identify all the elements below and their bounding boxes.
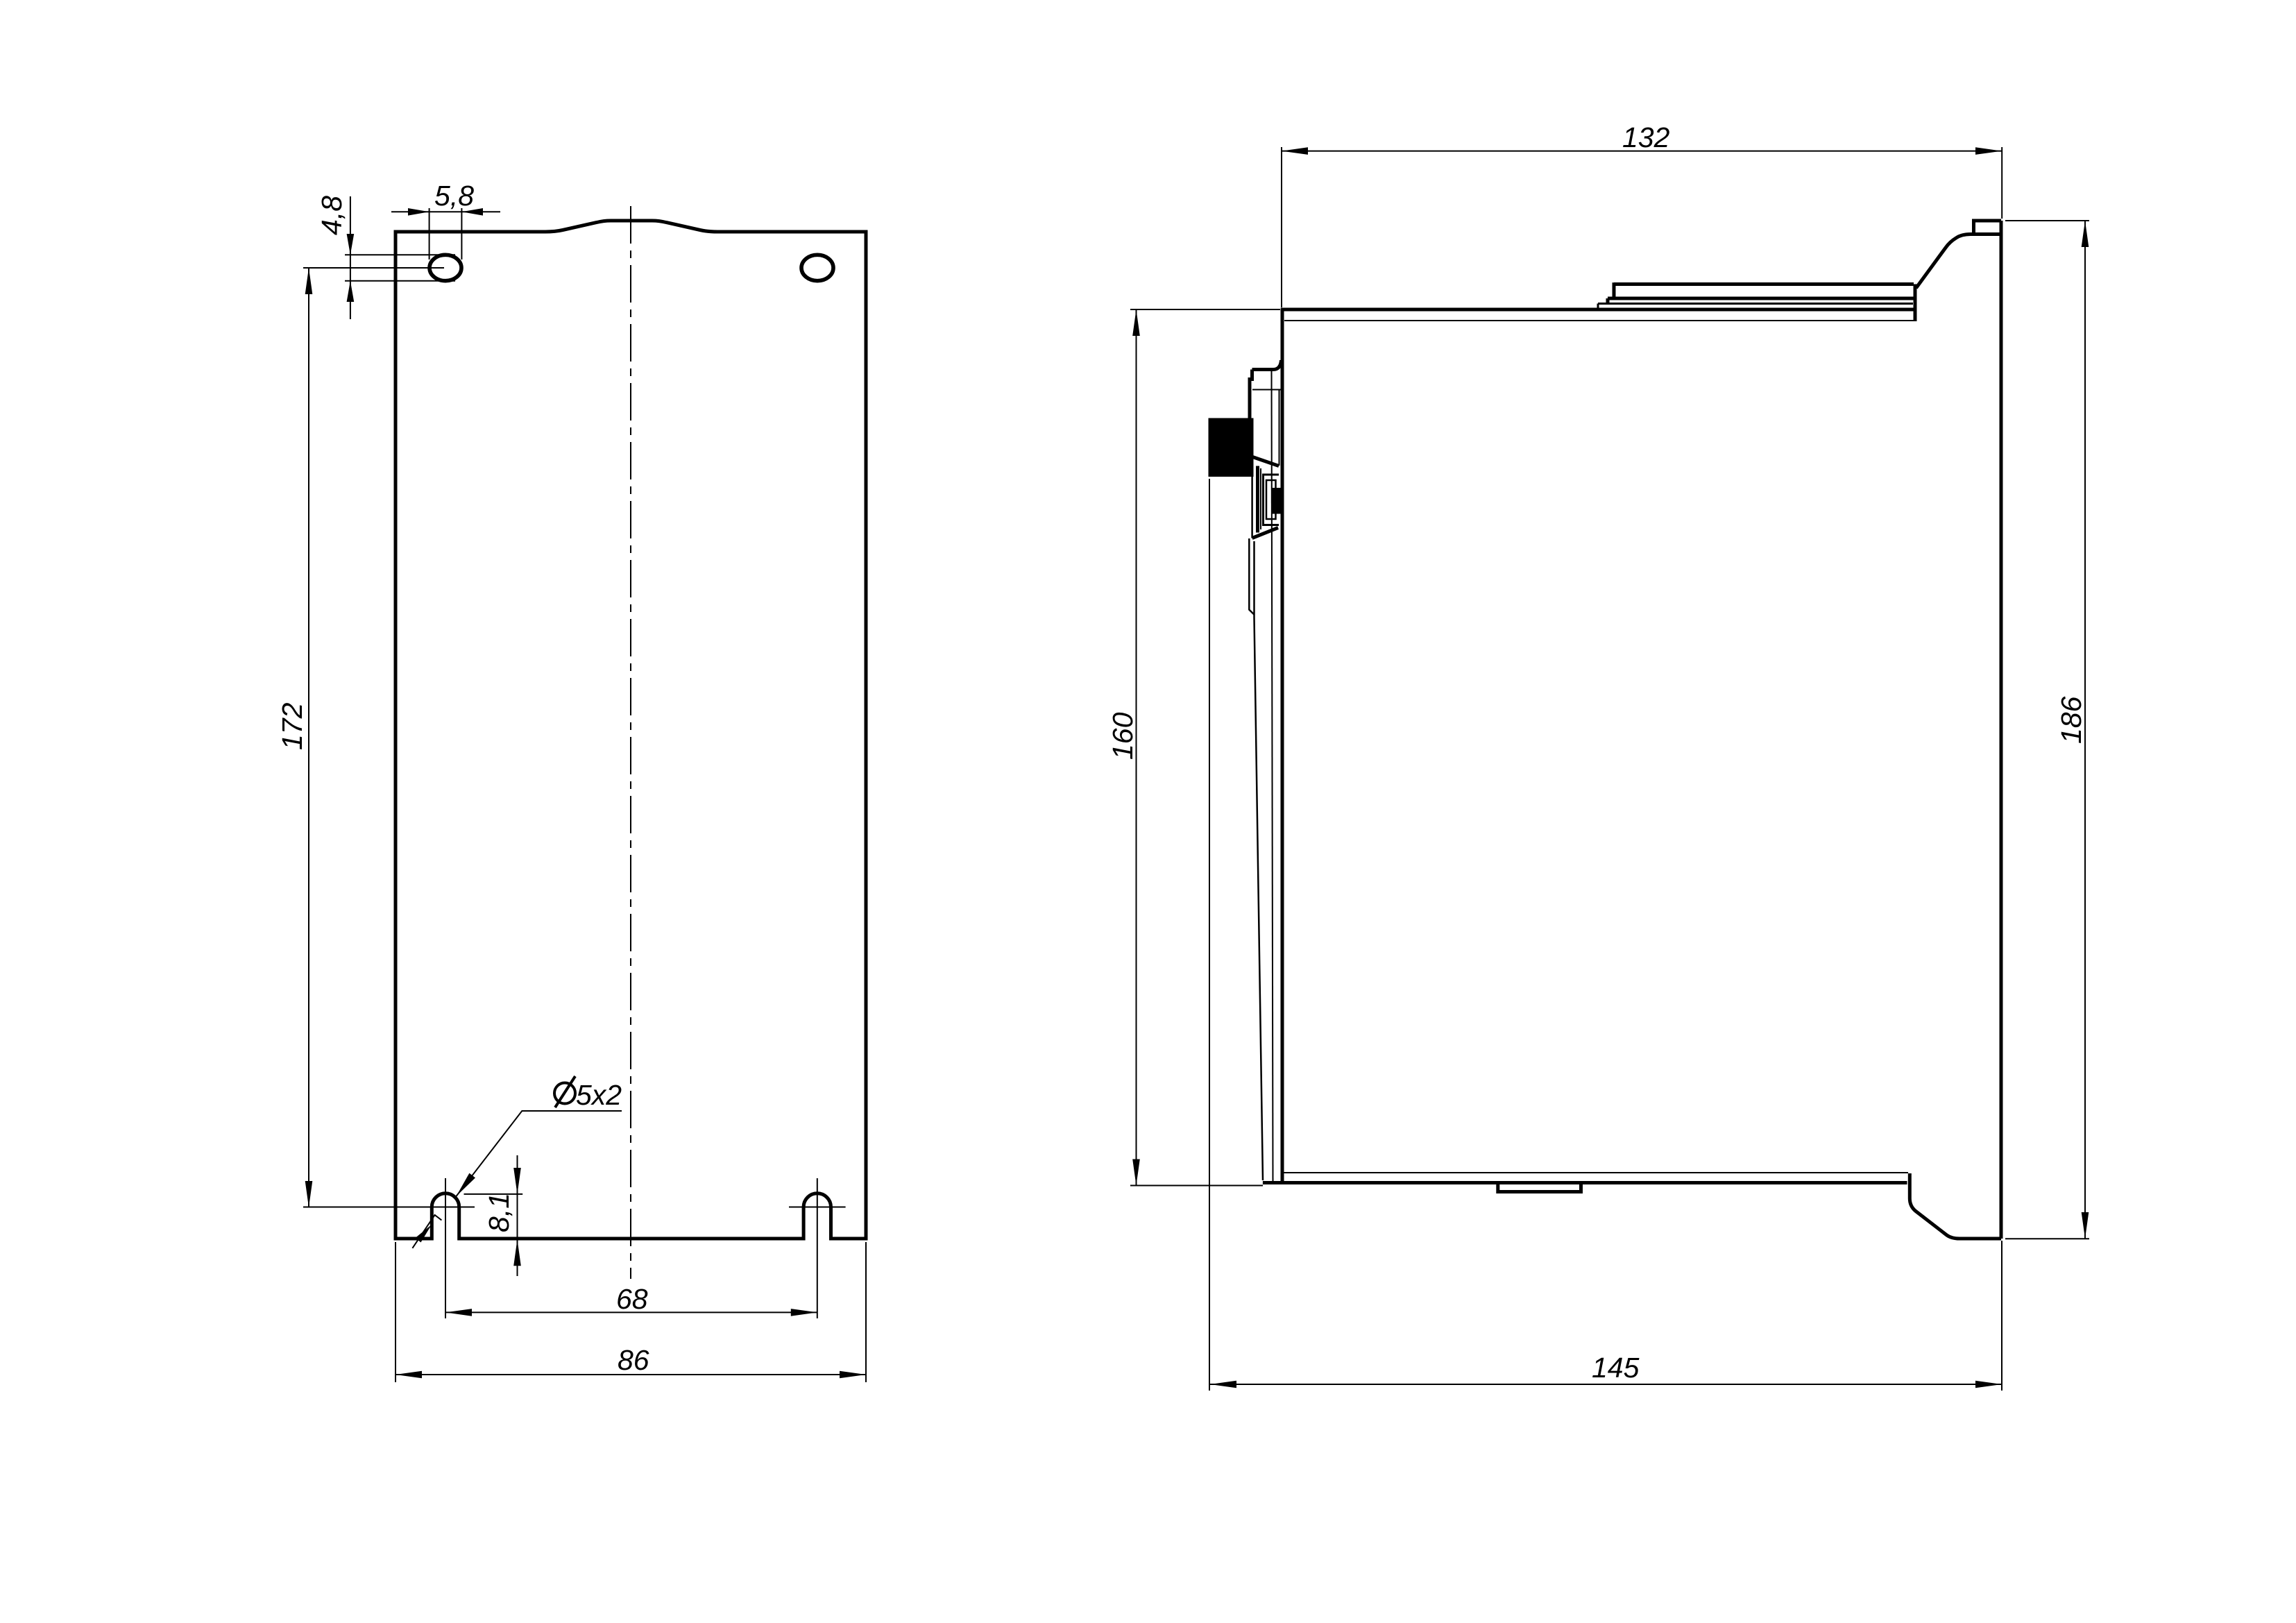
svg-text:86: 86 (618, 1344, 649, 1376)
svg-text:5,8: 5,8 (434, 180, 474, 212)
svg-text:132: 132 (1622, 121, 1670, 153)
svg-text:4,8: 4,8 (316, 196, 348, 235)
svg-text:5x2: 5x2 (576, 1079, 622, 1111)
svg-text:160: 160 (1107, 712, 1139, 760)
svg-text:145: 145 (1592, 1352, 1640, 1384)
svg-text:8,1: 8,1 (483, 1193, 515, 1232)
svg-text:172: 172 (276, 702, 308, 750)
svg-text:186: 186 (2055, 696, 2087, 744)
svg-text:68: 68 (616, 1283, 648, 1315)
